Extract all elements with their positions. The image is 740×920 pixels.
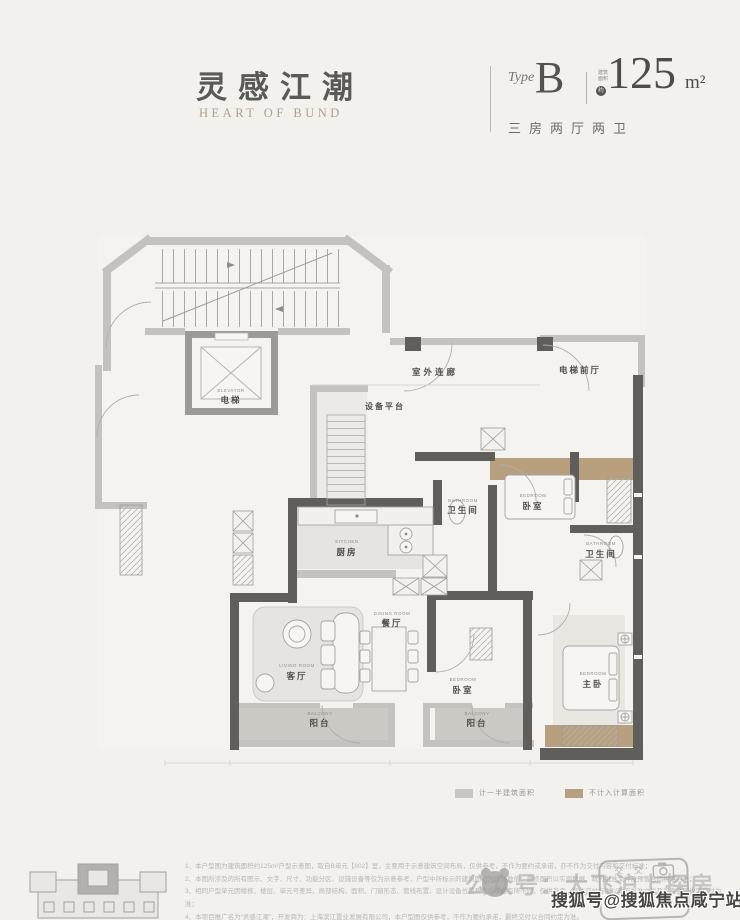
floor-plan: ELEVATOR 电梯 室外连廊 电梯前厅 设备平台 BATHROOM 卫生间 … <box>85 225 660 770</box>
label-outdoor-corridor: 室外连廊 <box>412 367 458 377</box>
label-bedroom2-cn: 卧室 <box>452 685 473 695</box>
brand-title-cn: 灵感江潮 <box>196 62 364 107</box>
label-kitchen-en: KITCHEN <box>335 539 358 544</box>
label-dining-cn: 餐厅 <box>380 618 402 628</box>
label-elevator-cn: 电梯 <box>220 395 241 405</box>
header-divider <box>490 66 491 132</box>
label-master-cn: 主卧 <box>582 679 603 689</box>
type-separator <box>586 72 587 104</box>
type-value: B <box>535 52 564 103</box>
sohu-watermark: 搜狐号@搜狐焦点咸宁站 <box>551 886 740 911</box>
label-bedroom2-en: BEDROOM <box>450 677 477 682</box>
label-living-en: LIVING ROOM <box>279 663 315 668</box>
label-bathroom1-en: BATHROOM <box>448 498 478 503</box>
badge-icons: 交 交 <box>614 863 647 877</box>
legend-half-area-swatch <box>455 789 473 798</box>
label-bedroom1-cn: 卧室 <box>522 501 543 511</box>
staircase <box>155 249 340 327</box>
label-kitchen-cn: 厨房 <box>336 547 357 557</box>
equipment-platform-ladder <box>327 415 365 505</box>
label-bedroom1-en: BEDROOM <box>520 493 547 498</box>
type-label: Type <box>508 70 534 86</box>
legend-half-area-label: 计一半建筑面积 <box>479 788 535 798</box>
label-balcony1-en: BALCONY <box>307 711 332 716</box>
legend-excluded-area-swatch <box>565 789 583 798</box>
label-dining-en: DINING ROOM <box>374 611 411 616</box>
floorplan-page: 灵感江潮 HEART OF BUND Type B 建筑 面积 约 125 m²… <box>0 0 740 920</box>
label-bathroom2-cn: 卫生间 <box>585 549 617 559</box>
label-balcony2-en: BALCONY <box>464 711 489 716</box>
label-living-cn: 客厅 <box>285 671 307 681</box>
layout-description: 三房两厅两卫 <box>508 118 678 137</box>
label-bathroom1-cn: 卫生间 <box>447 505 479 515</box>
area-approx-badge: 约 <box>596 86 606 96</box>
legend-excluded-area: 不计入计算面积 <box>565 787 645 799</box>
label-bathroom2-en: BATHROOM <box>586 541 616 546</box>
label-balcony2-cn: 阳台 <box>466 718 487 728</box>
legend-excluded-area-label: 不计入计算面积 <box>589 788 645 798</box>
brand-title-en: HEART OF BUND <box>199 106 343 121</box>
keyplan-thumbnail <box>28 858 168 920</box>
label-balcony1-cn: 阳台 <box>309 718 330 728</box>
label-master-en: BEDROOM <box>580 671 607 676</box>
camera-icon <box>652 862 677 879</box>
label-elevator-en: ELEVATOR <box>217 388 245 393</box>
legend-half-area: 计一半建筑面积 <box>455 787 535 799</box>
area-value: 125 <box>607 46 676 99</box>
area-unit: m² <box>685 72 705 94</box>
label-elevator-lobby: 电梯前厅 <box>559 365 601 375</box>
label-equipment-platform: 设备平台 <box>365 401 405 411</box>
